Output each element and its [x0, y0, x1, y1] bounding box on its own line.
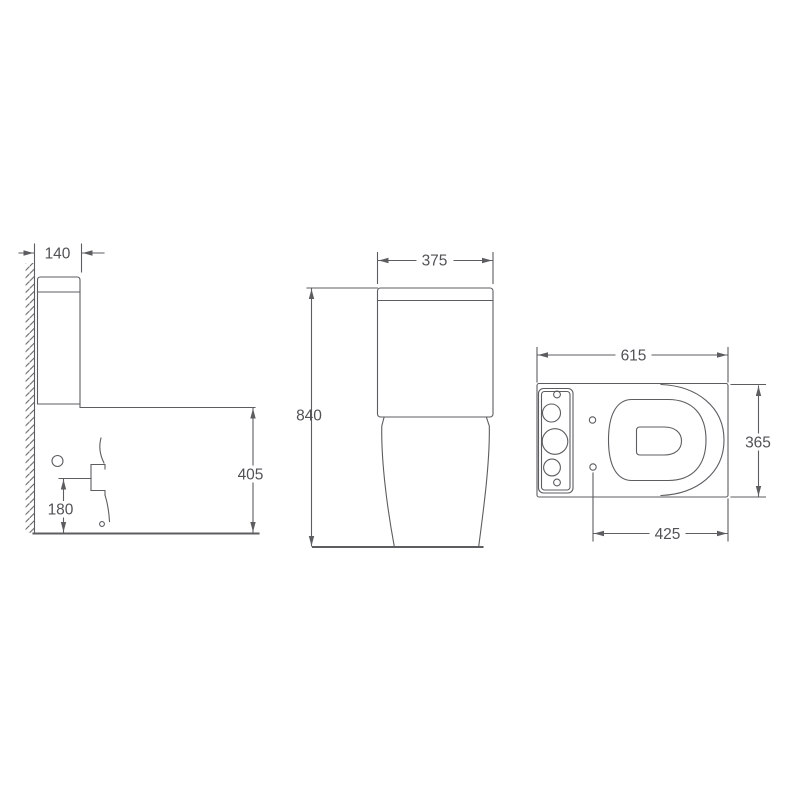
- dim-seat-hole-to-front: 425: [593, 473, 728, 543]
- side-inlet-hole: [52, 456, 63, 467]
- dim-label-total-height: 840: [296, 408, 322, 425]
- front-cistern-outline: [378, 288, 494, 417]
- dim-label-bowl-height: 405: [238, 467, 264, 484]
- side-outlet-bracket: [91, 438, 110, 522]
- plan-hinge-hole-bottom: [590, 464, 596, 470]
- dim-outlet-height: 180: [44, 479, 91, 533]
- plan-cistern-hole-top-small: [554, 391, 561, 398]
- wall-hatch: [26, 263, 35, 533]
- plan-cistern-hole-center: [542, 429, 568, 455]
- plan-seat-opening: [609, 400, 707, 481]
- dim-label-outlet-height: 180: [48, 502, 74, 519]
- dim-label-tank-depth: 140: [45, 246, 71, 263]
- dim-label-bowl-width: 365: [745, 435, 771, 452]
- technical-drawing-page: 140 405 180 375: [0, 0, 800, 800]
- dim-label-tank-width: 375: [422, 253, 448, 270]
- plan-hinge-hole-top: [589, 417, 595, 423]
- plan-cistern-hole-bottom-small: [554, 479, 561, 486]
- plan-cistern-hole-upper: [543, 404, 561, 422]
- front-pedestal-left: [382, 418, 395, 547]
- plan-view: 615 365 425: [537, 347, 776, 544]
- side-fixing-hole: [100, 522, 105, 527]
- plan-water-area: [637, 427, 682, 455]
- side-bowl-top-line: [80, 404, 255, 408]
- side-cistern-outline: [38, 277, 81, 404]
- side-view: 140 405 180: [19, 244, 266, 534]
- plan-cistern-hole-lower: [544, 459, 561, 476]
- dim-tank-width: 375: [378, 252, 494, 284]
- front-view: 375 840: [296, 252, 493, 547]
- dim-label-seat-hole-to-front: 425: [655, 526, 681, 543]
- dim-bowl-height: 405: [235, 409, 267, 533]
- front-pedestal-right: [479, 418, 490, 547]
- dim-total-height: 840: [296, 288, 377, 546]
- dim-bowl-width: 365: [731, 385, 776, 498]
- toilet-dimension-drawing: 140 405 180 375: [0, 0, 800, 800]
- dim-total-length: 615: [537, 347, 728, 383]
- dim-label-total-length: 615: [621, 348, 647, 365]
- plan-seat-outer: [661, 385, 724, 496]
